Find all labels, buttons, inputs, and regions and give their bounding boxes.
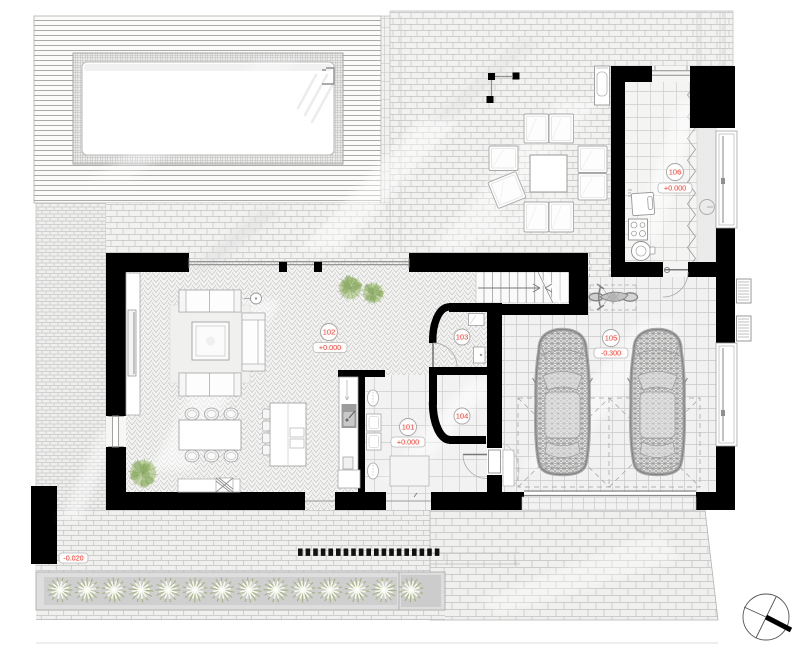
svg-text:101: 101 [402, 423, 415, 432]
svg-text:106: 106 [669, 168, 682, 177]
svg-text:+0.000: +0.000 [319, 343, 341, 352]
svg-text:104: 104 [456, 412, 469, 421]
svg-text:105: 105 [605, 334, 618, 343]
svg-text:+0.000: +0.000 [664, 184, 686, 193]
svg-text:-0.020: -0.020 [63, 554, 83, 563]
svg-text:-0.300: -0.300 [601, 349, 621, 358]
svg-text:102: 102 [323, 328, 336, 337]
svg-text:103: 103 [456, 333, 469, 342]
svg-text:+0.000: +0.000 [397, 438, 419, 447]
